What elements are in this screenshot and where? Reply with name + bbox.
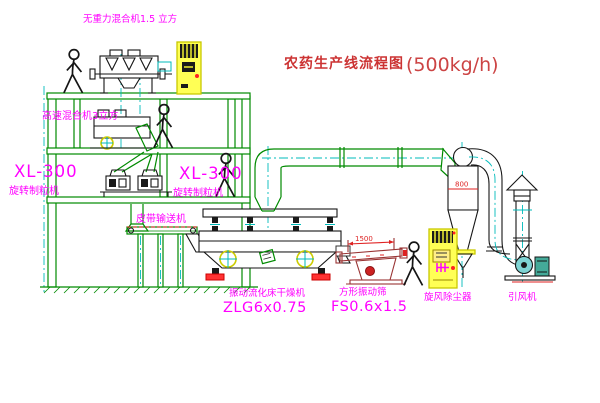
page-title: 农药生产线流程图(500kg/h) [283, 54, 499, 76]
label-granulator-left-name: 旋转制粒机 [9, 184, 59, 197]
y-chute [114, 152, 158, 172]
drawing-canvas: 800 15 [0, 0, 600, 403]
label-fan: 引风机 [508, 291, 537, 303]
ground-hatch [44, 287, 250, 293]
indicator-light [195, 74, 199, 78]
title-text: 农药生产线流程图 [283, 55, 404, 72]
person-figure-floor1 [64, 50, 83, 93]
label-sieve-name: 方形振动筛 [339, 286, 387, 298]
gravity-free-mixer-drawing [90, 50, 172, 93]
label-granulator-right-model: XL-300 [179, 164, 243, 183]
control-cabinet-1 [177, 42, 201, 94]
cad-flow-diagram: 800 15 [0, 0, 600, 403]
title-capacity: (500kg/h) [406, 54, 499, 76]
label-granulator-left-model: XL-300 [14, 162, 78, 181]
indicator-light [453, 232, 456, 235]
label-dryer-name: 振动流化床干燥机 [229, 287, 306, 299]
label-dryer-model: ZLG6x0.75 [223, 300, 307, 316]
cyclone-dim-label: 800 [455, 181, 468, 189]
exhaust-stack [507, 175, 537, 266]
label-belt-conveyor: 皮带输送机 [136, 212, 186, 225]
belt-conveyor-drawing [127, 227, 208, 287]
induced-draft-fan-drawing [505, 257, 555, 283]
label-cyclone: 旋风除尘器 [424, 291, 472, 303]
cyclone-drawing: 800 [448, 148, 526, 279]
indicator-light [451, 266, 455, 270]
label-gravity-free-mixer: 无重力混合机1.5 立方 [83, 13, 177, 25]
label-sieve-model: FS0.6x1.5 [331, 299, 408, 315]
fluid-bed-dryer-drawing [199, 209, 350, 280]
dryer-feet [206, 268, 330, 280]
exhaust-duct [255, 147, 455, 211]
label-high-speed-mixer: 高速混合机3立方 [42, 109, 118, 122]
sieve-dim-label: 1500 [355, 235, 373, 243]
spring-mounts [210, 217, 335, 231]
label-granulator-right-name: 旋转制粒机 [173, 186, 223, 199]
control-cabinet-2 [429, 229, 457, 288]
